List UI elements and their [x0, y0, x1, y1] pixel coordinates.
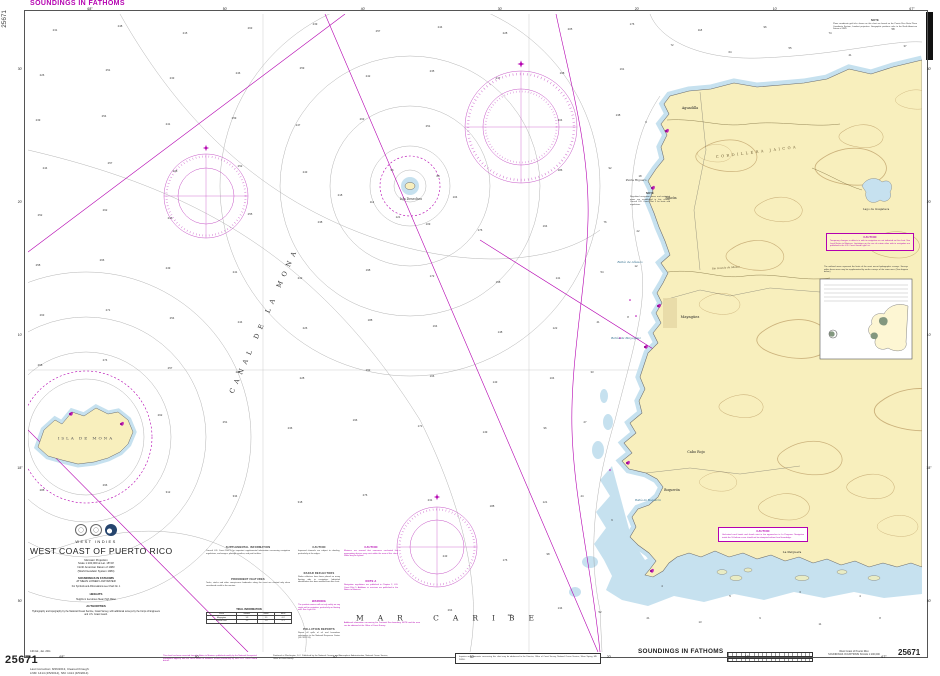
edition-note: 14th Ed., Jan. 2011: [30, 650, 51, 653]
nos-seal-icon: [90, 524, 102, 536]
authorities-heading: AUTHORITIES: [30, 604, 162, 608]
graticule-label: 20': [18, 200, 22, 204]
chart-title: WEST COAST OF PUERTO RICO: [30, 546, 162, 556]
tide-cell: Puerto Real: [207, 620, 237, 624]
noaa-logo-icon: [105, 524, 117, 536]
tide-cell: 1.2: [236, 620, 257, 624]
agency-seals: [30, 524, 162, 536]
region-label: WEST INDIES: [30, 539, 162, 544]
datum-line-2: (World Geodetic System 1984): [30, 570, 162, 574]
survey-inset: [820, 279, 912, 359]
graticule-label: 50': [18, 599, 22, 603]
soundings-in-fathoms-bottom: SOUNDINGS IN FATHOMS: [638, 648, 723, 655]
bottom-chart-scale-line: SOUNDINGS IN FATHOMS SCALE 1:100,000: [822, 653, 886, 656]
tide-table: TIDAL INFORMATION PlaceMHHWMHWMLWMayagüe…: [206, 608, 292, 624]
chart-canvas: [28, 14, 922, 652]
side-chart-number: 25671: [1, 10, 8, 28]
graticule-label: 30': [18, 67, 22, 71]
isla-desecheo: [405, 182, 415, 189]
commerce-seal-icon: [75, 524, 87, 536]
graticule-label: 10': [18, 333, 22, 337]
authorities-text: Hydrography and topography by the Nation…: [30, 611, 162, 617]
nautical-mile-scale-bar: [727, 652, 813, 663]
tide-table-grid: PlaceMHHWMHWMLWMayagüez1.31.10.2Puerto R…: [206, 612, 292, 624]
correction-note: Last Correction: 8/26/2013, Cleared thro…: [30, 668, 89, 676]
heights-line: Heights in feet above Mean High Water: [30, 599, 162, 602]
bottom-chart-title: West Coast of Puerto Rico SOUNDINGS IN F…: [822, 650, 886, 657]
mayaguez-urban-area: [663, 298, 677, 328]
heights-heading: HEIGHTS: [30, 592, 162, 596]
chart-number-bottom-left: 25671: [5, 654, 38, 666]
soundings-in-fathoms-title: SOUNDINGS IN FATHOMS: [30, 0, 125, 7]
chart-number-bottom-right: 25671: [898, 648, 920, 657]
symbols-reference: For Symbols and Abbreviations see Chart …: [30, 586, 162, 589]
graticule-label: 18°: [17, 466, 22, 470]
nautical-chart-page: SOUNDINGS IN FATHOMS 25671: [0, 0, 940, 676]
tide-cell: 1.0: [257, 620, 275, 624]
tide-cell: 0.1: [275, 620, 292, 624]
correction-line-2: LNM: 1414 (4/5/2014), NM: 1414 (4/5/2014…: [30, 672, 89, 676]
chart-title-block: WEST INDIES WEST COAST OF PUERTO RICO Me…: [30, 524, 162, 617]
soundings-datum-line: AT MEAN LOWER LOW WATER: [30, 580, 162, 584]
